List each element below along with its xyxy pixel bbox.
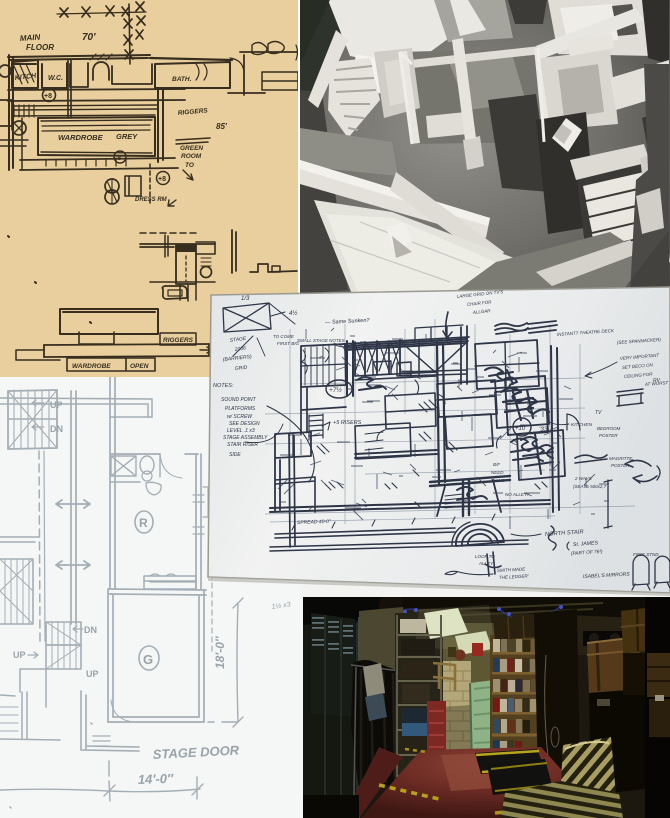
svg-text:RV: RV [653, 378, 661, 384]
svg-text:1/3: 1/3 [241, 296, 250, 302]
svg-text:DN: DN [50, 424, 63, 434]
svg-text:FLOOR: FLOOR [26, 43, 54, 52]
svg-text:w/ SCREW: w/ SCREW [227, 414, 253, 420]
svg-text:POSTER: POSTER [611, 463, 630, 468]
svg-text:SMALL STAGE NOTES: SMALL STAGE NOTES [297, 338, 345, 343]
svg-text:KITCHEN: KITCHEN [571, 422, 593, 428]
svg-text:85′: 85′ [216, 122, 228, 131]
svg-text:G: G [143, 652, 153, 667]
svg-text:LOOP TO: LOOP TO [475, 554, 495, 559]
svg-text:4½: 4½ [289, 310, 297, 317]
svg-text:+8: +8 [158, 176, 166, 183]
svg-text:SIDE: SIDE [229, 452, 241, 458]
svg-text:BATH.: BATH. [172, 76, 192, 83]
svg-text:RIGGERS: RIGGERS [163, 337, 194, 344]
svg-text:TO COME: TO COME [273, 334, 295, 339]
svg-text:B/F: B/F [493, 462, 500, 467]
svg-text:UP: UP [13, 650, 26, 660]
svg-text:+7½: +7½ [329, 386, 342, 394]
svg-text:GREEN: GREEN [180, 145, 203, 152]
svg-text:DN: DN [84, 625, 97, 635]
svg-text:TO: TO [185, 162, 194, 169]
svg-text:18′-0″: 18′-0″ [213, 635, 227, 669]
svg-text:NEED: NEED [491, 470, 504, 475]
svg-text:R: R [139, 516, 148, 530]
svg-text:WARDROBE: WARDROBE [72, 363, 111, 370]
svg-text:SPREAD 40-0″: SPREAD 40-0″ [297, 519, 331, 526]
svg-text:TV: TV [595, 410, 602, 416]
svg-text:BEDROOM: BEDROOM [597, 426, 621, 431]
svg-text:UP: UP [86, 669, 99, 679]
svg-text:+8: +8 [44, 93, 52, 100]
svg-text:ROOM: ROOM [181, 153, 202, 160]
svg-text:+5 RISERS: +5 RISERS [333, 420, 362, 426]
svg-text:POSTER: POSTER [599, 433, 618, 438]
svg-text:SOUND POINT: SOUND POINT [221, 397, 257, 403]
svg-text:GREY: GREY [116, 132, 138, 141]
svg-text:NOTES:: NOTES: [213, 383, 234, 389]
svg-text:LEVEL .1 x3: LEVEL .1 x3 [227, 428, 255, 434]
svg-text:SEE DESIGN: SEE DESIGN [229, 421, 260, 427]
svg-text:MAGRITTE: MAGRITTE [609, 456, 633, 461]
svg-text:WARDROBE: WARDROBE [58, 133, 104, 142]
svg-text:14′-0″: 14′-0″ [138, 771, 175, 787]
svg-text:UP: UP [50, 400, 63, 410]
svg-text:PIANO: PIANO [491, 478, 506, 483]
svg-text:DRESS RM: DRESS RM [135, 197, 168, 203]
svg-text:W.C.: W.C. [48, 75, 63, 82]
svg-text:MAIN: MAIN [20, 33, 41, 43]
svg-text:(SEATS 500x2,7: (SEATS 500x2,7 [573, 484, 607, 489]
svg-text:PLATFORMS: PLATFORMS [225, 406, 256, 412]
svg-text:+10: +10 [515, 426, 526, 432]
svg-text:70′: 70′ [82, 32, 96, 43]
svg-text:STAGE ASSEMBLY: STAGE ASSEMBLY [223, 435, 268, 441]
svg-text:OPEN: OPEN [130, 363, 149, 370]
